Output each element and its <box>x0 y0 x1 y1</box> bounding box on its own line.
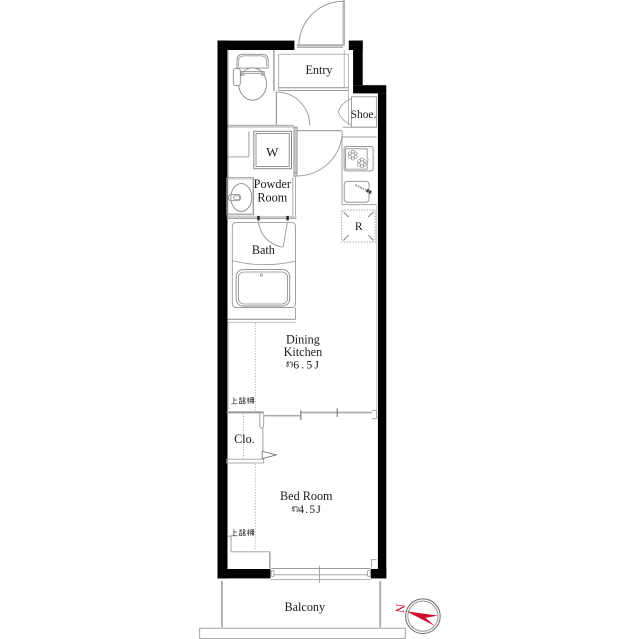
svg-text:Kitchen: Kitchen <box>284 345 323 359</box>
svg-text:Balcony: Balcony <box>284 600 326 614</box>
svg-text:Entry: Entry <box>305 63 333 77</box>
svg-text:Room: Room <box>257 191 287 205</box>
svg-text:Bed Room: Bed Room <box>280 489 333 503</box>
svg-text:Bath: Bath <box>252 243 275 257</box>
svg-text:Shoe.: Shoe. <box>351 109 377 121</box>
svg-text:Clo.: Clo. <box>234 432 255 446</box>
svg-text:Powder: Powder <box>254 177 291 191</box>
svg-text:6.5J: 6.5J <box>293 358 321 371</box>
svg-text:N: N <box>392 603 407 614</box>
svg-text:R: R <box>355 220 363 233</box>
svg-text:W: W <box>266 144 279 159</box>
svg-text:4.5J: 4.5J <box>298 503 322 516</box>
